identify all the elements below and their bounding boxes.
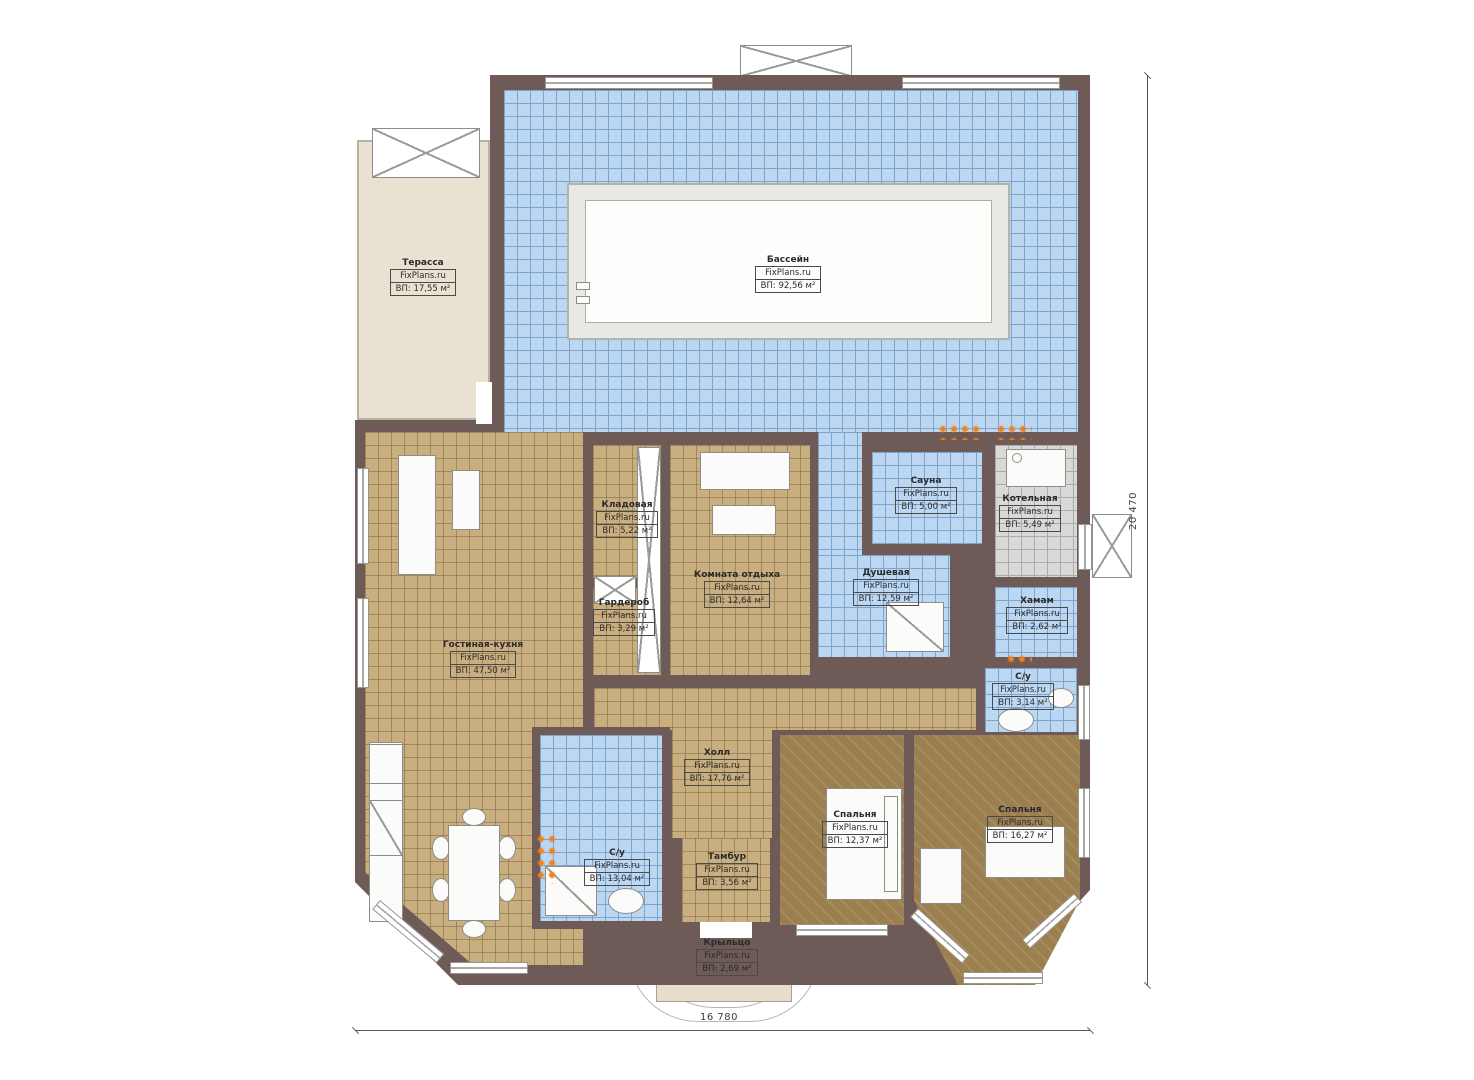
- room-name: С/у: [980, 672, 1066, 682]
- room-label-terrace: Терасса FixPlans.ru ВП: 17,55 м²: [363, 258, 483, 296]
- bay-window: [963, 972, 1043, 984]
- radiator-dots: [996, 424, 1032, 440]
- stove-icon: [369, 744, 403, 784]
- radiator-dots: [536, 834, 556, 884]
- closet: [637, 447, 661, 673]
- top-entrance-canopy: [740, 45, 852, 77]
- toilet-icon: [998, 708, 1034, 732]
- kitchen-sink: [369, 800, 403, 856]
- entrance-door-gap: [700, 922, 752, 938]
- room-area: ВП: 2,62 м²: [1007, 621, 1066, 633]
- brand-text: FixPlans.ru: [1007, 608, 1066, 621]
- room-area: ВП: 13,04 м²: [585, 873, 650, 885]
- window: [902, 77, 1060, 89]
- room-label-lounge: Комната отдыха FixPlans.ru ВП: 12,64 м²: [677, 570, 797, 608]
- room-area: ВП: 92,56 м²: [756, 280, 821, 292]
- sofa: [700, 452, 790, 490]
- chair: [462, 920, 486, 938]
- room-area: ВП: 5,22 м²: [597, 525, 656, 537]
- window: [545, 77, 713, 89]
- window: [1078, 685, 1090, 740]
- room-label-wc-right: С/у FixPlans.ru ВП: 3,14 м²: [980, 672, 1066, 710]
- room-name: Котельная: [984, 494, 1076, 504]
- room-name: Сауна: [883, 476, 969, 486]
- room-label-bedroom-2: Спальня FixPlans.ru ВП: 16,27 м²: [968, 805, 1072, 843]
- toilet-icon: [608, 888, 644, 914]
- shower-icon: [886, 602, 944, 652]
- chair: [498, 836, 516, 860]
- room-name: Спальня: [805, 810, 905, 820]
- room-name: Гардероб: [580, 598, 668, 608]
- brand-text: FixPlans.ru: [705, 582, 770, 595]
- brand-text: FixPlans.ru: [597, 512, 656, 525]
- brand-text: FixPlans.ru: [697, 864, 756, 877]
- room-name: Холл: [672, 748, 762, 758]
- boiler-dial-icon: [1012, 453, 1022, 463]
- room-area: ВП: 2,69 м²: [697, 963, 756, 975]
- room-label-porch: Крыльцо FixPlans.ru ВП: 2,69 м²: [680, 938, 774, 976]
- room-name: Душевая: [841, 568, 931, 578]
- room-label-pool: Бассейн FixPlans.ru ВП: 92,56 м²: [728, 255, 848, 293]
- brand-text: FixPlans.ru: [1000, 506, 1059, 519]
- coffee-table: [712, 505, 776, 535]
- room-label-vestibule: Тамбур FixPlans.ru ВП: 3,56 м²: [682, 852, 772, 890]
- pool-corridor-floor: [818, 432, 862, 562]
- room-area: ВП: 12,59 м²: [854, 593, 919, 605]
- window: [1078, 788, 1090, 858]
- radiator-dots: [938, 424, 982, 440]
- room-name: Крыльцо: [680, 938, 774, 948]
- window: [357, 598, 369, 688]
- room-label-hall: Холл FixPlans.ru ВП: 17,76 м²: [672, 748, 762, 786]
- wardrobe-cabinet: [920, 848, 962, 904]
- dining-table: [448, 825, 500, 921]
- brand-text: FixPlans.ru: [988, 817, 1053, 830]
- bay-window: [450, 962, 528, 974]
- room-area: ВП: 3,56 м²: [697, 877, 756, 889]
- room-area: ВП: 17,76 м²: [685, 773, 750, 785]
- tv-stand: [452, 470, 480, 530]
- brand-text: FixPlans.ru: [594, 610, 653, 623]
- room-name: Тамбур: [682, 852, 772, 862]
- room-area: ВП: 16,27 м²: [988, 830, 1053, 842]
- room-name: Спальня: [968, 805, 1072, 815]
- room-area: ВП: 17,55 м²: [391, 283, 456, 295]
- terrace-canopy: [372, 128, 480, 178]
- chair: [498, 878, 516, 902]
- floor-plan: Терасса FixPlans.ru ВП: 17,55 м² Бассейн…: [0, 0, 1474, 1080]
- brand-text: FixPlans.ru: [896, 488, 955, 501]
- room-area: ВП: 12,37 м²: [823, 835, 888, 847]
- room-label-wc-left: С/у FixPlans.ru ВП: 13,04 м²: [572, 848, 662, 886]
- room-label-sauna: Сауна FixPlans.ru ВП: 5,00 м²: [883, 476, 969, 514]
- dimension-height-label: 20 470: [1128, 492, 1139, 530]
- radiator-dots: [1006, 654, 1032, 667]
- pool-ladder-icon: [576, 296, 590, 304]
- brand-text: FixPlans.ru: [756, 267, 821, 280]
- room-area: ВП: 5,49 м²: [1000, 519, 1059, 531]
- hall-floor: [594, 688, 976, 730]
- brand-text: FixPlans.ru: [451, 652, 516, 665]
- window: [796, 924, 888, 936]
- room-name: Терасса: [363, 258, 483, 268]
- pool-ladder-icon: [576, 282, 590, 290]
- room-area: ВП: 3,14 м²: [993, 697, 1052, 709]
- room-area: ВП: 5,00 м²: [896, 501, 955, 513]
- room-name: Бассейн: [728, 255, 848, 265]
- brand-text: FixPlans.ru: [993, 684, 1052, 697]
- room-name: Кладовая: [583, 500, 671, 510]
- brand-text: FixPlans.ru: [585, 860, 650, 873]
- room-label-boiler: Котельная FixPlans.ru ВП: 5,49 м²: [984, 494, 1076, 532]
- room-label-storage: Кладовая FixPlans.ru ВП: 5,22 м²: [583, 500, 671, 538]
- room-label-hammam: Хамам FixPlans.ru ВП: 2,62 м²: [993, 596, 1081, 634]
- brand-text: FixPlans.ru: [391, 270, 456, 283]
- room-area: ВП: 12,64 м²: [705, 595, 770, 607]
- terrace-door-gap: [476, 382, 492, 424]
- room-name: Гостиная-кухня: [428, 640, 538, 650]
- brand-text: FixPlans.ru: [697, 950, 756, 963]
- room-area: ВП: 47,50 м²: [451, 665, 516, 677]
- chair: [462, 808, 486, 826]
- sofa: [398, 455, 436, 575]
- room-area: ВП: 3,29 м²: [594, 623, 653, 635]
- dimension-line-horizontal: [355, 1030, 1090, 1031]
- room-name: Хамам: [993, 596, 1081, 606]
- room-name: С/у: [572, 848, 662, 858]
- brand-text: FixPlans.ru: [823, 822, 888, 835]
- dimension-width-label: 16 780: [700, 1012, 738, 1023]
- brand-text: FixPlans.ru: [854, 580, 919, 593]
- room-label-wardrobe: Гардероб FixPlans.ru ВП: 3,29 м²: [580, 598, 668, 636]
- room-label-bedroom-1: Спальня FixPlans.ru ВП: 12,37 м²: [805, 810, 905, 848]
- brand-text: FixPlans.ru: [685, 760, 750, 773]
- room-label-living: Гостиная-кухня FixPlans.ru ВП: 47,50 м²: [428, 640, 538, 678]
- dimension-line-vertical: [1147, 75, 1148, 985]
- room-name: Комната отдыха: [677, 570, 797, 580]
- side-door: [1078, 524, 1092, 570]
- side-entrance-porch: [1092, 514, 1132, 578]
- window: [357, 468, 369, 564]
- room-label-shower: Душевая FixPlans.ru ВП: 12,59 м²: [841, 568, 931, 606]
